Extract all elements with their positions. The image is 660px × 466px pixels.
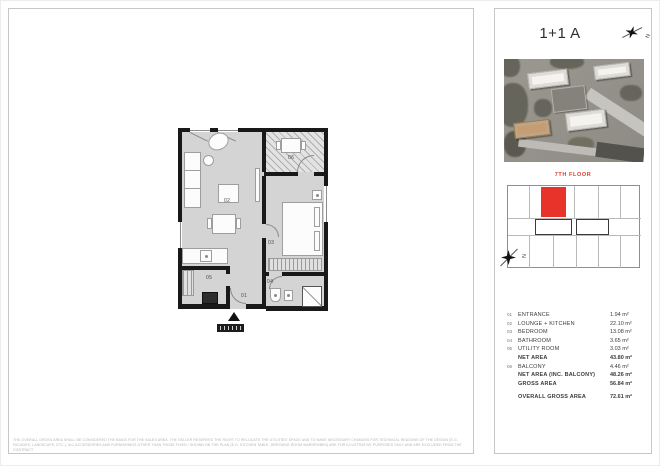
- table-row: 05 UTILITY ROOM 3.03 m²: [507, 346, 641, 355]
- brochure-page: 01 02 03 04 05 06 THE OVERALL GROSS AREA…: [0, 0, 660, 466]
- row-value: 3.65 m²: [610, 338, 641, 344]
- row-value: 22.10 m²: [610, 321, 641, 327]
- row-label: NET AREA (INC. BALCONY): [518, 372, 610, 378]
- row-number: 06: [507, 364, 518, 369]
- table-row-net-area: NET AREA 43.80 m²: [507, 355, 641, 364]
- table-row-gross-area: GROSS AREA 56.84 m²: [507, 381, 641, 390]
- entry-marker-badge: [217, 324, 244, 332]
- table-row: 03 BEDROOM 13.08 m²: [507, 329, 641, 338]
- row-label: UTILITY ROOM: [518, 346, 610, 352]
- row-label: BALCONY: [518, 364, 610, 370]
- floor-plan: 01 02 03 04 05 06: [178, 128, 328, 313]
- keyplan-line: [508, 235, 641, 236]
- row-label: GROSS AREA: [518, 381, 610, 387]
- tv-unit: [255, 168, 260, 202]
- room-label-bedroom: 03: [268, 240, 274, 246]
- table-row: 06 BALCONY 4.46 m²: [507, 364, 641, 373]
- keyplan-line: [553, 235, 554, 268]
- trees: [504, 83, 528, 127]
- row-label: ENTRANCE: [518, 312, 610, 318]
- utility-door-opening: [226, 274, 230, 286]
- room-label-balcony: 06: [288, 155, 294, 161]
- building-roof: [565, 109, 607, 132]
- row-number: 02: [507, 321, 518, 326]
- wall-balcony-left: [262, 128, 266, 172]
- keyplan-core-left: [535, 219, 572, 235]
- disclaimer-text: THE OVERALL GROSS AREA SHALL BE CONSIDER…: [13, 438, 465, 453]
- window-top-1: [190, 128, 210, 132]
- info-panel-frame: 1+1 A N 7TH FLOOR: [494, 8, 652, 454]
- row-value: 1.94 m²: [610, 312, 641, 318]
- balcony-table: [281, 138, 301, 153]
- trees: [534, 99, 552, 117]
- compass-top: N: [618, 19, 646, 47]
- keyplan-line: [598, 235, 599, 268]
- building-core: [551, 85, 588, 113]
- row-number: 05: [507, 346, 518, 351]
- row-label: BEDROOM: [518, 329, 610, 335]
- keyplan-line: [598, 186, 599, 218]
- pillow-1: [314, 207, 320, 227]
- key-plan: [507, 185, 640, 268]
- keyplan-line: [574, 186, 575, 218]
- wall-balcony-bottom: [264, 172, 324, 176]
- shower: [302, 286, 322, 307]
- row-label: OVERALL GROSS AREA: [518, 394, 610, 400]
- dining-table: [212, 214, 236, 234]
- balcony-door-opening: [298, 172, 314, 176]
- parking-lot: [595, 142, 644, 162]
- room-label-lounge: 02: [224, 198, 230, 204]
- row-number: 03: [507, 329, 518, 334]
- keyplan-line: [529, 235, 530, 268]
- table-row: 04 BATHROOM 3.65 m²: [507, 338, 641, 347]
- window-right: [324, 186, 328, 222]
- trees: [620, 85, 642, 101]
- keyplan-line: [620, 186, 621, 218]
- row-label: NET AREA: [518, 355, 610, 361]
- keyplan-line: [620, 235, 621, 268]
- aerial-site-photo: [504, 59, 644, 162]
- building-highlighted: [513, 119, 551, 139]
- row-value: 13.08 m²: [610, 329, 641, 335]
- sofa: [184, 152, 201, 208]
- toilet: [270, 288, 281, 302]
- row-value: 3.03 m²: [610, 346, 641, 352]
- wardrobe: [268, 258, 322, 271]
- keyplan-highlighted-unit: [541, 187, 566, 217]
- wall-mid-lower: [262, 238, 266, 304]
- keyplan-line: [508, 218, 641, 219]
- bath-sink: [284, 290, 293, 301]
- compass-star-icon: [623, 24, 639, 40]
- wall-bottom-2: [246, 304, 266, 309]
- row-value: 56.84 m²: [610, 381, 641, 387]
- row-label: BATHROOM: [518, 338, 610, 344]
- washing-machine: [182, 270, 194, 296]
- compass-bottom: N: [497, 245, 521, 271]
- row-value: 43.80 m²: [610, 355, 641, 361]
- building-roof: [593, 62, 630, 80]
- keyplan-line: [529, 186, 530, 218]
- row-number: 04: [507, 338, 518, 343]
- keyplan-line: [576, 235, 577, 268]
- trees: [504, 59, 520, 77]
- area-table: 01 ENTRANCE 1.94 m² 02 LOUNGE + KITCHEN …: [507, 312, 641, 403]
- window-left: [178, 222, 182, 248]
- disclaimer-line-2: FACADES, LANDSCAPE, ETC.). ALL ACCESSORI…: [13, 443, 465, 453]
- compass-north-label: N: [520, 254, 526, 258]
- entry-marker-ticks: [220, 326, 241, 330]
- kitchen-sink: [200, 250, 212, 262]
- room-label-bathroom: 04: [267, 279, 273, 285]
- room-label-utility: 05: [206, 275, 212, 281]
- row-value: 4.46 m²: [610, 364, 641, 370]
- table-row-overall-gross-area: OVERALL GROSS AREA 72.61 m²: [507, 394, 641, 403]
- dining-chair-right: [236, 218, 241, 229]
- table-row: 01 ENTRANCE 1.94 m²: [507, 312, 641, 321]
- row-label: LOUNGE + KITCHEN: [518, 321, 610, 327]
- pillow-2: [314, 231, 320, 251]
- nightstand: [312, 190, 322, 200]
- row-number: 01: [507, 312, 518, 317]
- row-value: 48.26 m²: [610, 372, 641, 378]
- kitchen-appliance: [202, 292, 218, 304]
- side-table: [203, 155, 214, 166]
- floor-indicator-label: 7TH FLOOR: [495, 172, 651, 178]
- trees: [550, 59, 584, 69]
- wall-bottom-1: [178, 304, 230, 309]
- plan-sheet-frame: 01 02 03 04 05 06 THE OVERALL GROSS AREA…: [8, 8, 474, 454]
- wall-mid-upper: [262, 176, 266, 224]
- table-row-net-area-inc-balcony: NET AREA (INC. BALCONY) 48.26 m²: [507, 372, 641, 381]
- room-label-entrance: 01: [241, 293, 247, 299]
- keyplan-core-right: [576, 219, 609, 235]
- table-row: 02 LOUNGE + KITCHEN 22.10 m²: [507, 321, 641, 330]
- entry-door-opening: [230, 304, 246, 309]
- building-roof: [527, 69, 569, 90]
- balcony-chair-2: [301, 141, 306, 150]
- row-value: 72.61 m²: [610, 394, 641, 400]
- entry-arrow-icon: [228, 312, 240, 321]
